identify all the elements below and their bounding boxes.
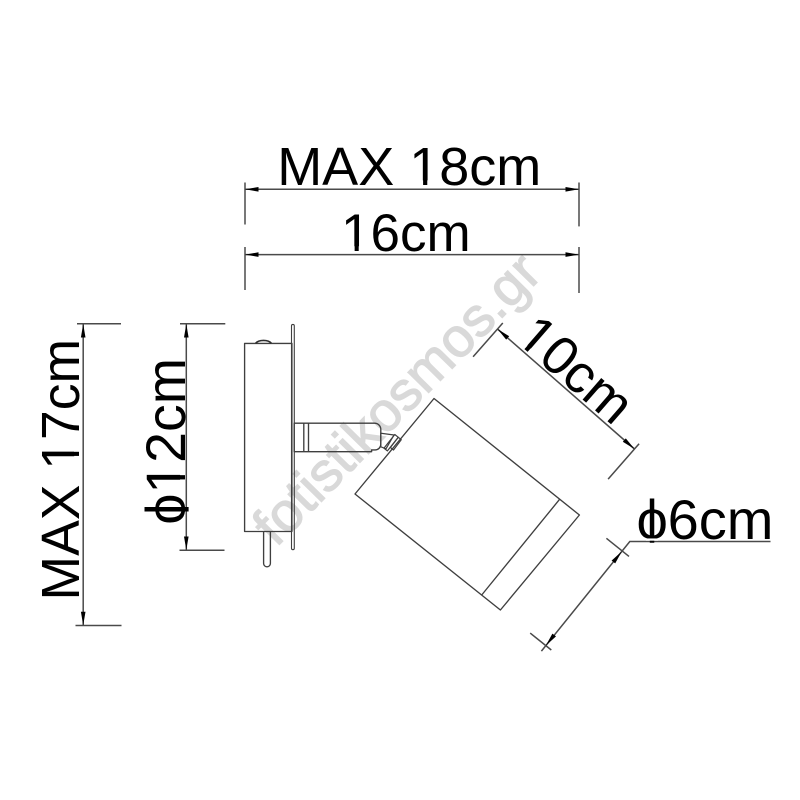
svg-text:ϕ: ϕ bbox=[135, 494, 197, 525]
svg-text:16cm: 16cm bbox=[341, 204, 471, 263]
svg-text:6cm: 6cm bbox=[668, 488, 774, 551]
svg-text:MAX 17cm: MAX 17cm bbox=[32, 339, 91, 601]
svg-text:ϕ: ϕ bbox=[637, 488, 668, 551]
svg-text:MAX 18cm: MAX 18cm bbox=[277, 137, 541, 197]
svg-text:12cm: 12cm bbox=[135, 358, 197, 494]
